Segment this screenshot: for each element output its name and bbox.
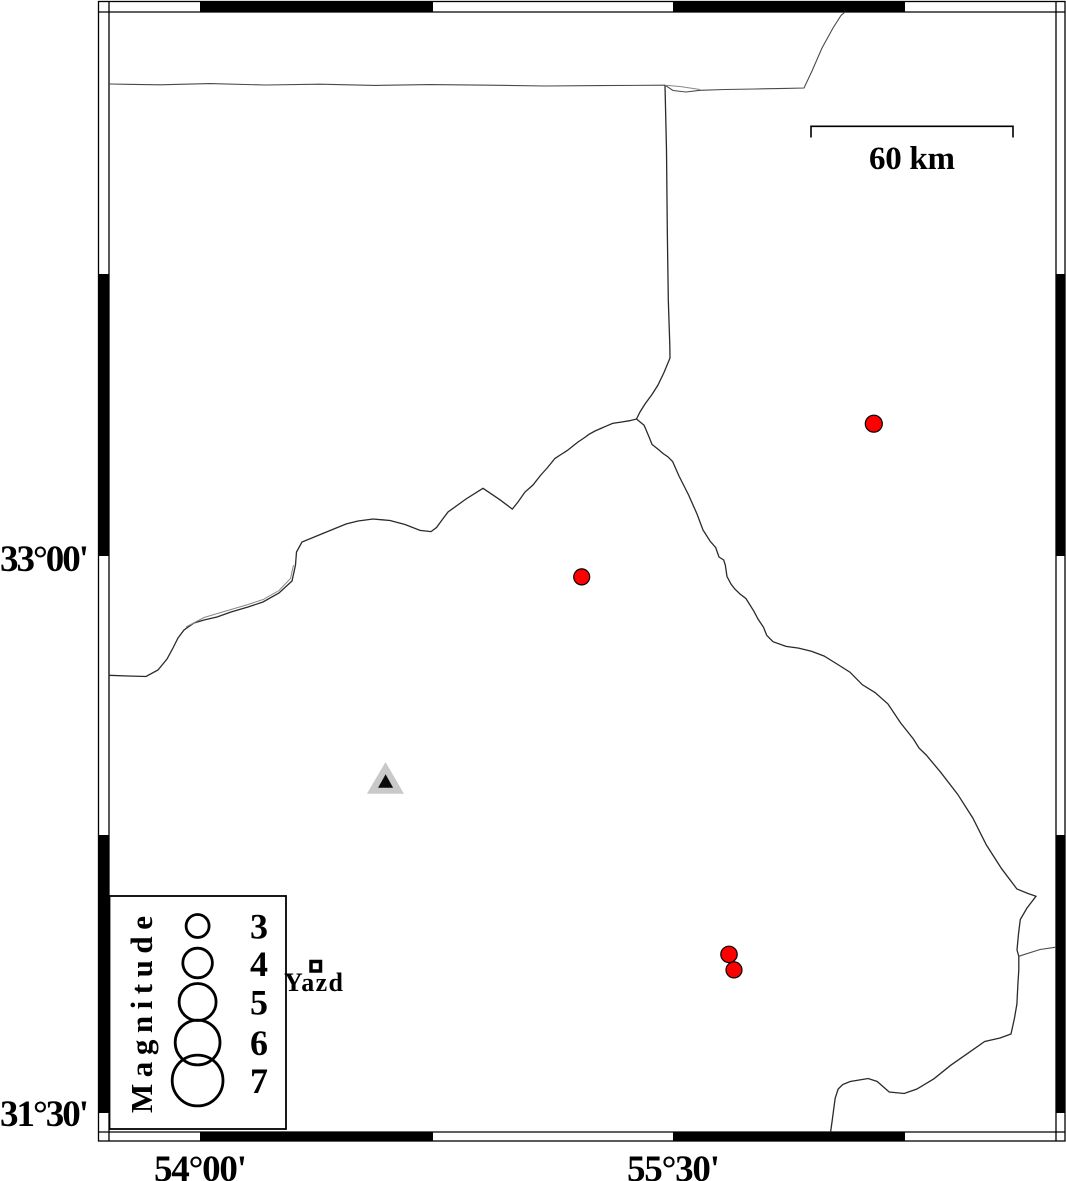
svg-text:6: 6 xyxy=(250,1023,268,1063)
svg-text:33°00': 33°00' xyxy=(0,539,89,580)
svg-text:3: 3 xyxy=(250,907,268,947)
svg-text:7: 7 xyxy=(250,1061,268,1101)
svg-text:54°00': 54°00' xyxy=(154,1149,247,1181)
svg-text:31°30': 31°30' xyxy=(0,1094,89,1135)
svg-text:60 km: 60 km xyxy=(869,141,955,177)
svg-text:Yazd: Yazd xyxy=(284,968,344,997)
svg-text:55°30': 55°30' xyxy=(627,1149,720,1181)
svg-text:5: 5 xyxy=(250,983,268,1023)
svg-text:4: 4 xyxy=(250,944,268,984)
